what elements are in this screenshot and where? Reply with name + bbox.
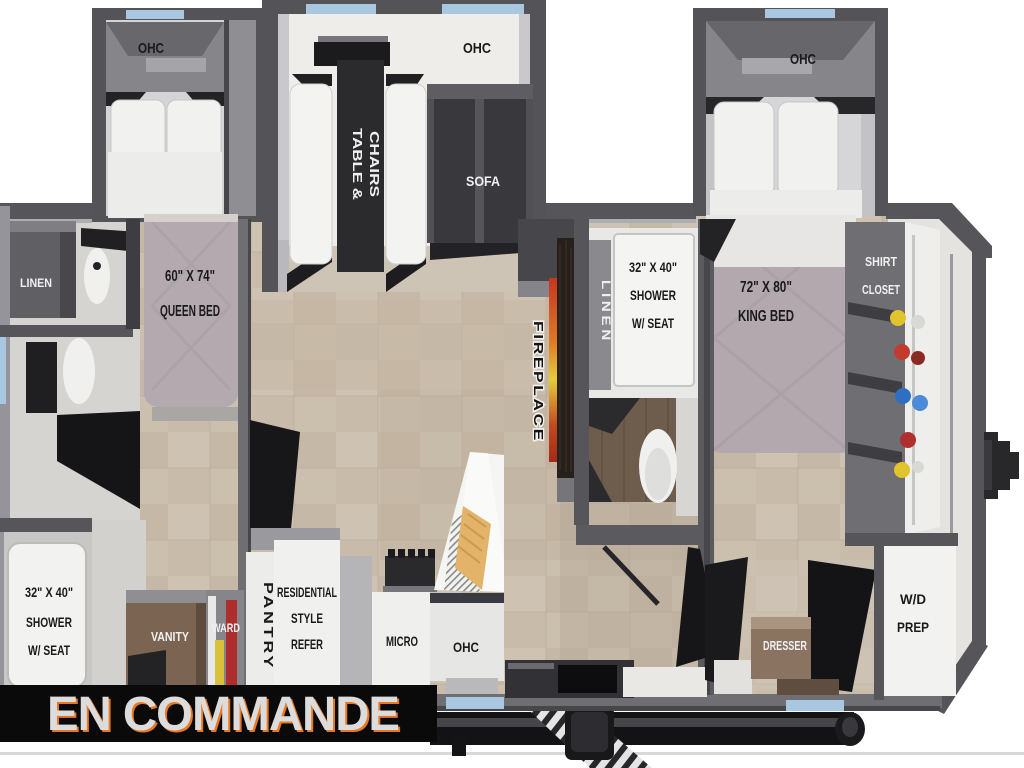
svg-text:SOFA: SOFA <box>466 173 500 189</box>
svg-text:SHIRT: SHIRT <box>865 254 897 269</box>
svg-text:KING BED: KING BED <box>738 308 794 325</box>
svg-text:SHOWER: SHOWER <box>630 287 676 303</box>
svg-text:W/D: W/D <box>900 591 926 607</box>
svg-text:FIREPLACE: FIREPLACE <box>531 321 546 443</box>
svg-text:TABLE &: TABLE & <box>350 128 365 200</box>
svg-text:PREP: PREP <box>897 619 929 635</box>
svg-text:72" X 80": 72" X 80" <box>740 279 792 296</box>
svg-text:PANTRY: PANTRY <box>261 582 276 670</box>
svg-text:SHOWER: SHOWER <box>26 614 72 630</box>
svg-text:RESIDENTIAL: RESIDENTIAL <box>277 584 337 600</box>
svg-text:DRESSER: DRESSER <box>763 638 807 653</box>
svg-text:CLOSET: CLOSET <box>862 282 900 297</box>
svg-text:MICRO: MICRO <box>386 633 418 649</box>
svg-text:STYLE: STYLE <box>291 610 323 626</box>
svg-text:VANITY: VANITY <box>151 629 189 644</box>
svg-text:OHC: OHC <box>138 40 164 57</box>
svg-text:W/ SEAT: W/ SEAT <box>28 642 70 658</box>
svg-text:OHC: OHC <box>453 639 479 655</box>
svg-text:32" X 40": 32" X 40" <box>629 259 677 275</box>
svg-text:LINEN: LINEN <box>20 276 52 290</box>
svg-text:LINEN: LINEN <box>599 280 613 344</box>
svg-text:EN COMMANDE: EN COMMANDE <box>47 688 399 741</box>
svg-text:QUEEN BED: QUEEN BED <box>160 303 220 320</box>
svg-text:WARD: WARD <box>212 621 240 635</box>
svg-text:OHC: OHC <box>790 51 816 68</box>
svg-text:CHAIRS: CHAIRS <box>367 131 382 197</box>
svg-text:W/ SEAT: W/ SEAT <box>632 315 674 331</box>
svg-text:60" X 74": 60" X 74" <box>165 268 215 285</box>
svg-text:REFER: REFER <box>291 636 323 652</box>
svg-text:32" X 40": 32" X 40" <box>25 584 73 600</box>
svg-text:OHC: OHC <box>463 40 491 57</box>
